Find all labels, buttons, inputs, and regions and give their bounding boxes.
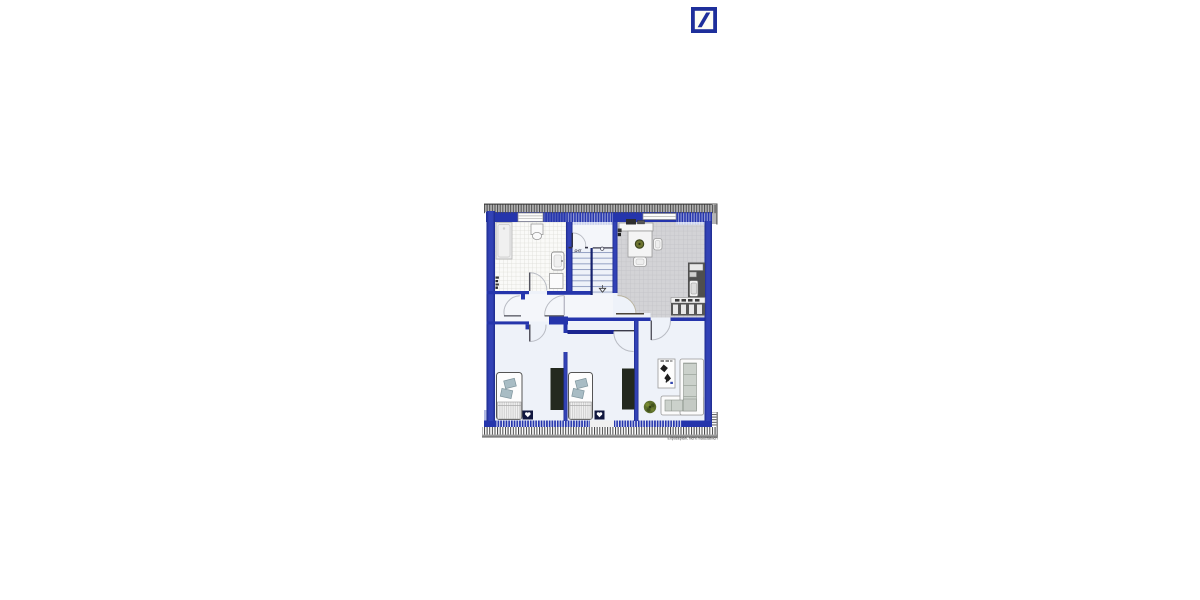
svg-text:Exposeplan, nicht maßstäblich: Exposeplan, nicht maßstäblich: [667, 437, 717, 441]
